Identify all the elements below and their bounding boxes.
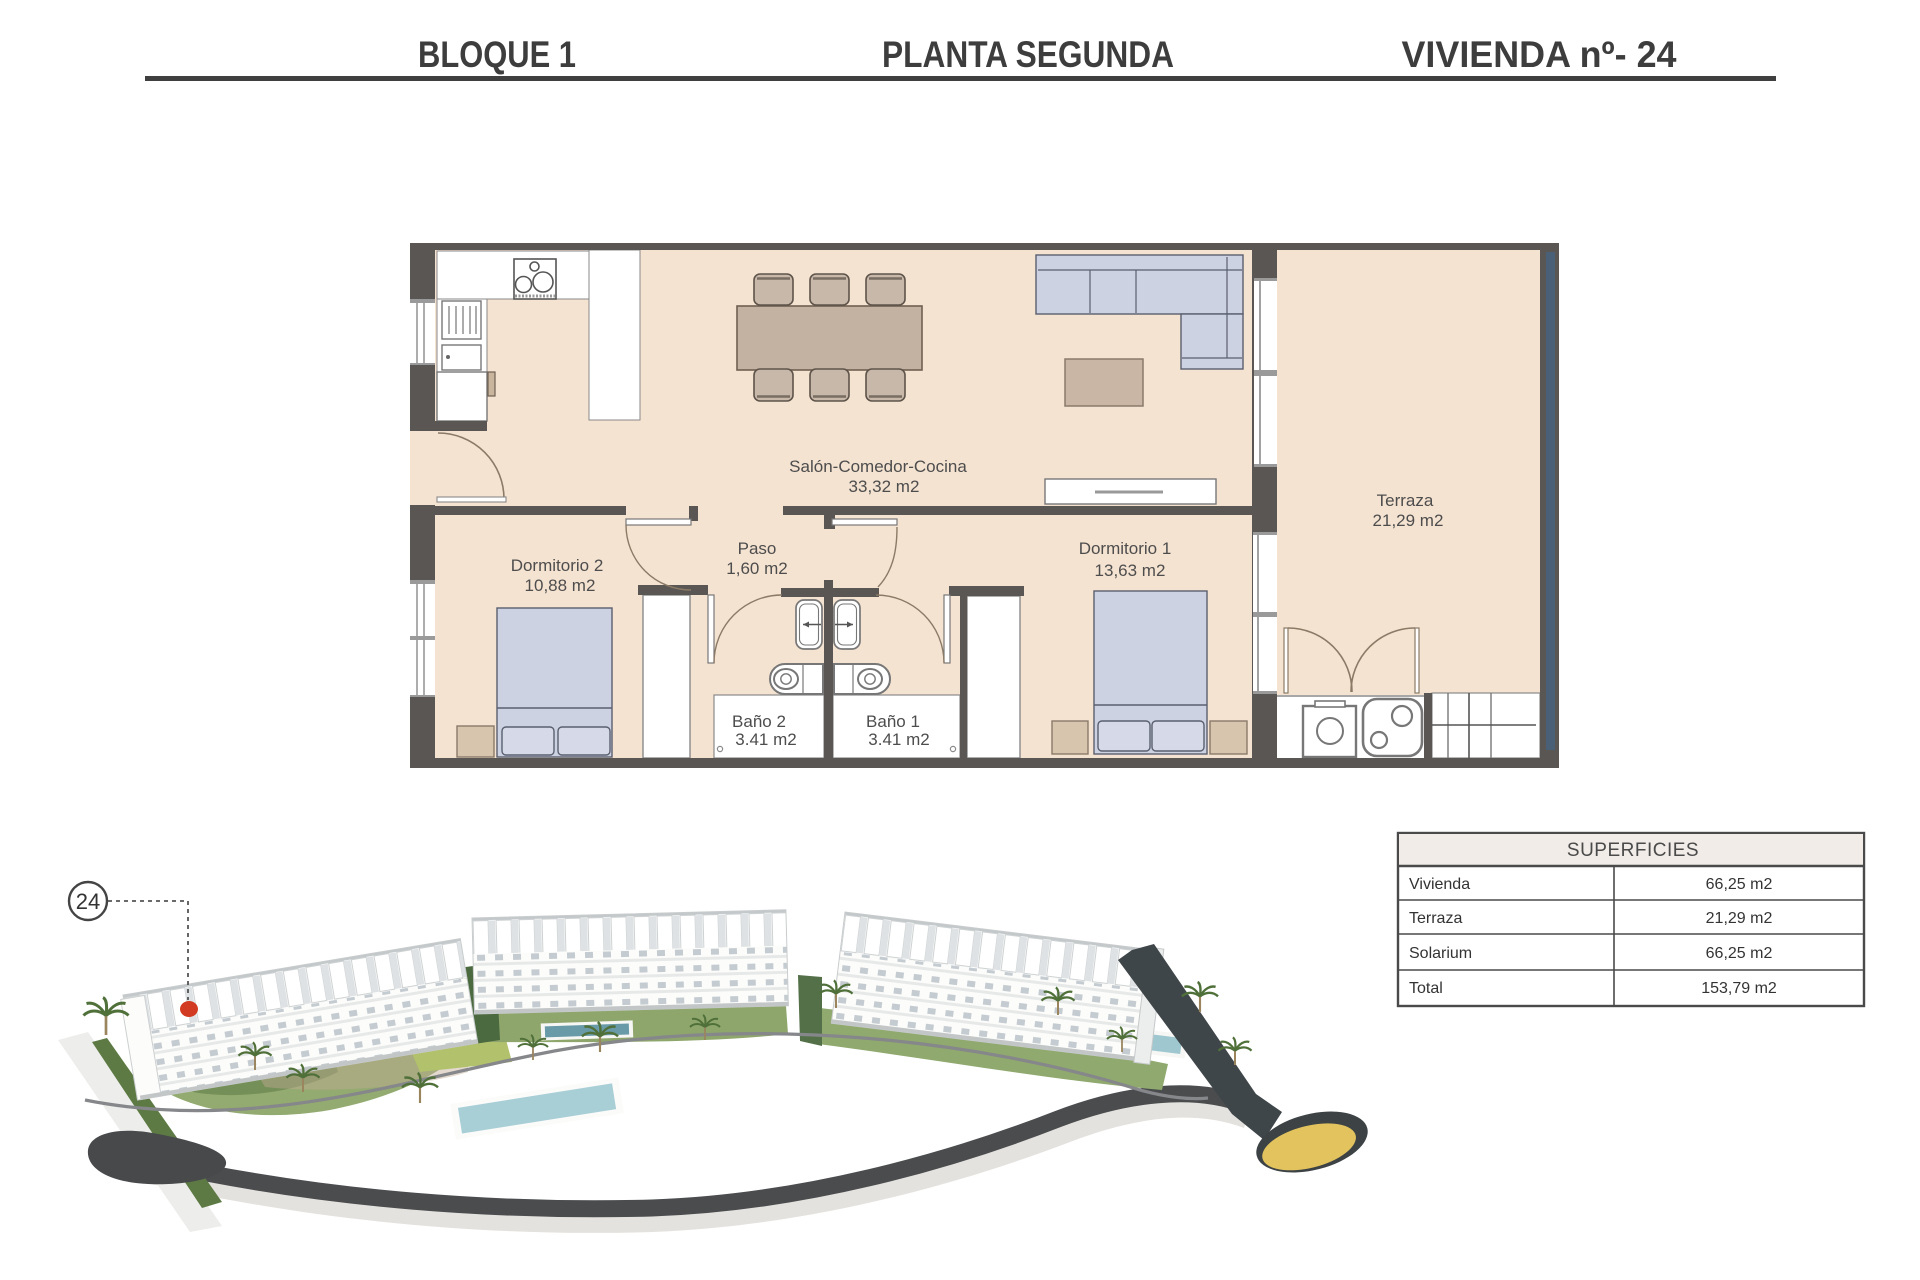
svg-text:3.41 m2: 3.41 m2 (868, 730, 929, 749)
svg-text:153,79 m2: 153,79 m2 (1701, 980, 1777, 997)
svg-text:SUPERFICIES: SUPERFICIES (1567, 840, 1699, 861)
svg-text:1,60 m2: 1,60 m2 (726, 559, 787, 578)
svg-text:Terraza: Terraza (1377, 491, 1434, 510)
svg-text:Terraza: Terraza (1409, 910, 1462, 927)
svg-text:Salón-Comedor-Cocina: Salón-Comedor-Cocina (789, 457, 967, 476)
svg-text:66,25 m2: 66,25 m2 (1706, 876, 1773, 893)
svg-text:13,63 m2: 13,63 m2 (1095, 561, 1166, 580)
svg-text:BLOQUE 1: BLOQUE 1 (418, 34, 576, 75)
svg-text:33,32 m2: 33,32 m2 (849, 477, 920, 496)
svg-text:Dormitorio 1: Dormitorio 1 (1079, 539, 1172, 558)
svg-text:Baño 1: Baño 1 (866, 712, 920, 731)
svg-text:21,29 m2: 21,29 m2 (1706, 910, 1773, 927)
svg-text:Solarium: Solarium (1409, 945, 1472, 962)
svg-text:21,29 m2: 21,29 m2 (1373, 511, 1444, 530)
svg-text:66,25 m2: 66,25 m2 (1706, 945, 1773, 962)
svg-text:Vivienda: Vivienda (1409, 876, 1470, 893)
svg-text:Baño 2: Baño 2 (732, 712, 786, 731)
svg-text:10,88 m2: 10,88 m2 (525, 576, 596, 595)
svg-text:Total: Total (1409, 980, 1443, 997)
svg-text:VIVIENDA nº- 24: VIVIENDA nº- 24 (1402, 34, 1677, 75)
svg-text:Paso: Paso (738, 539, 777, 558)
svg-text:24: 24 (76, 889, 100, 914)
svg-text:3.41 m2: 3.41 m2 (735, 730, 796, 749)
svg-text:PLANTA SEGUNDA: PLANTA SEGUNDA (882, 34, 1174, 75)
svg-text:Dormitorio 2: Dormitorio 2 (511, 556, 604, 575)
